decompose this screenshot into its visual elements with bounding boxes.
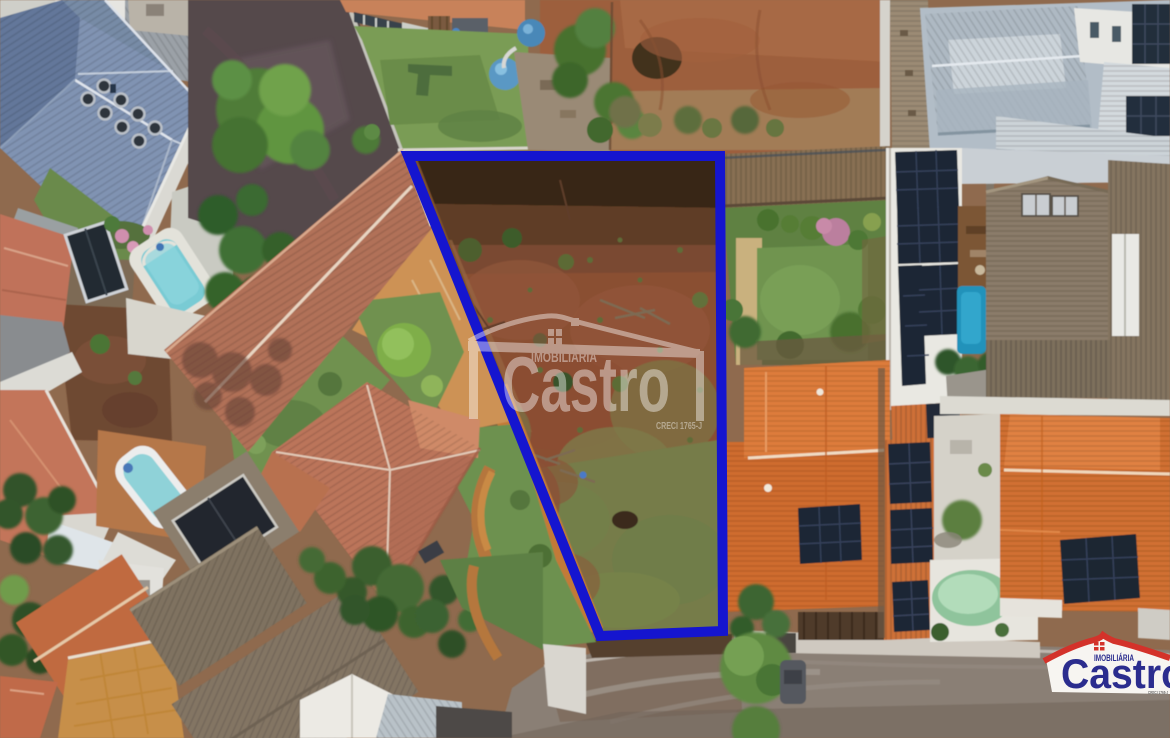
svg-text:Castro: Castro bbox=[502, 340, 670, 428]
svg-text:CRECI 1765-J: CRECI 1765-J bbox=[656, 421, 702, 432]
svg-text:CRECI 1765-J: CRECI 1765-J bbox=[1148, 690, 1168, 695]
